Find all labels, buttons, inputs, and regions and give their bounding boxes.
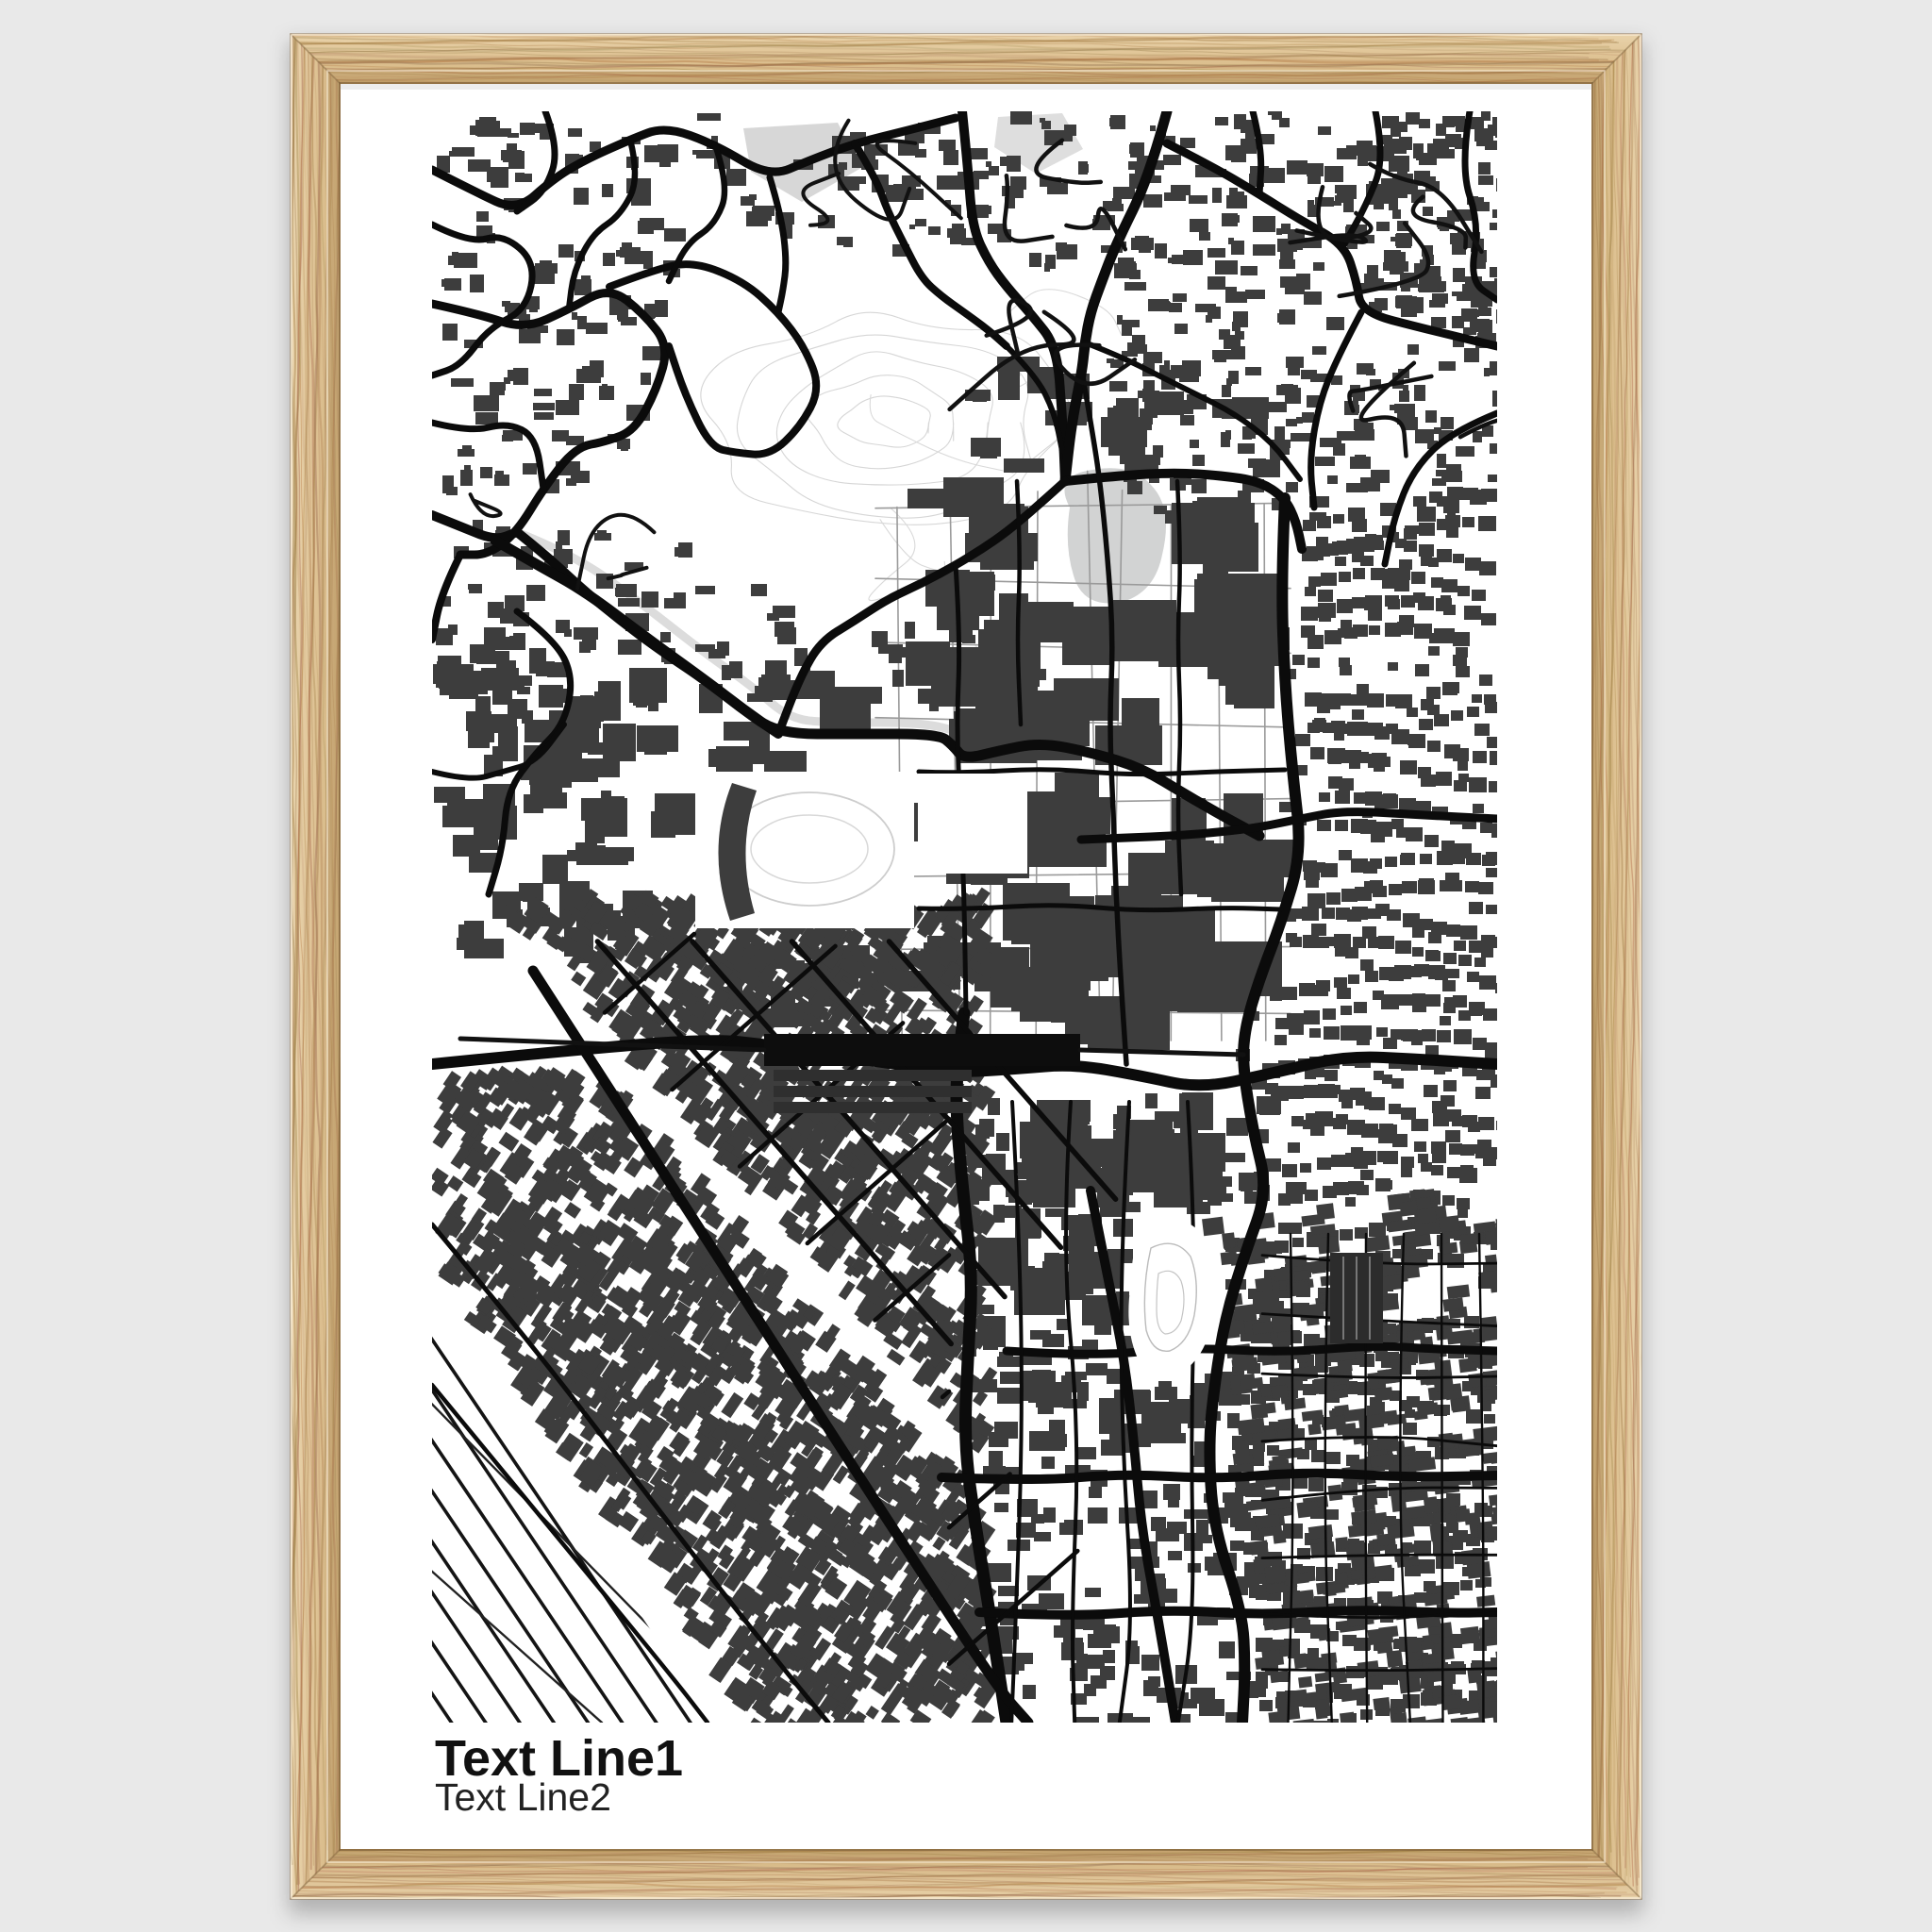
svg-text:Text Line2: Text Line2 xyxy=(435,1775,611,1819)
